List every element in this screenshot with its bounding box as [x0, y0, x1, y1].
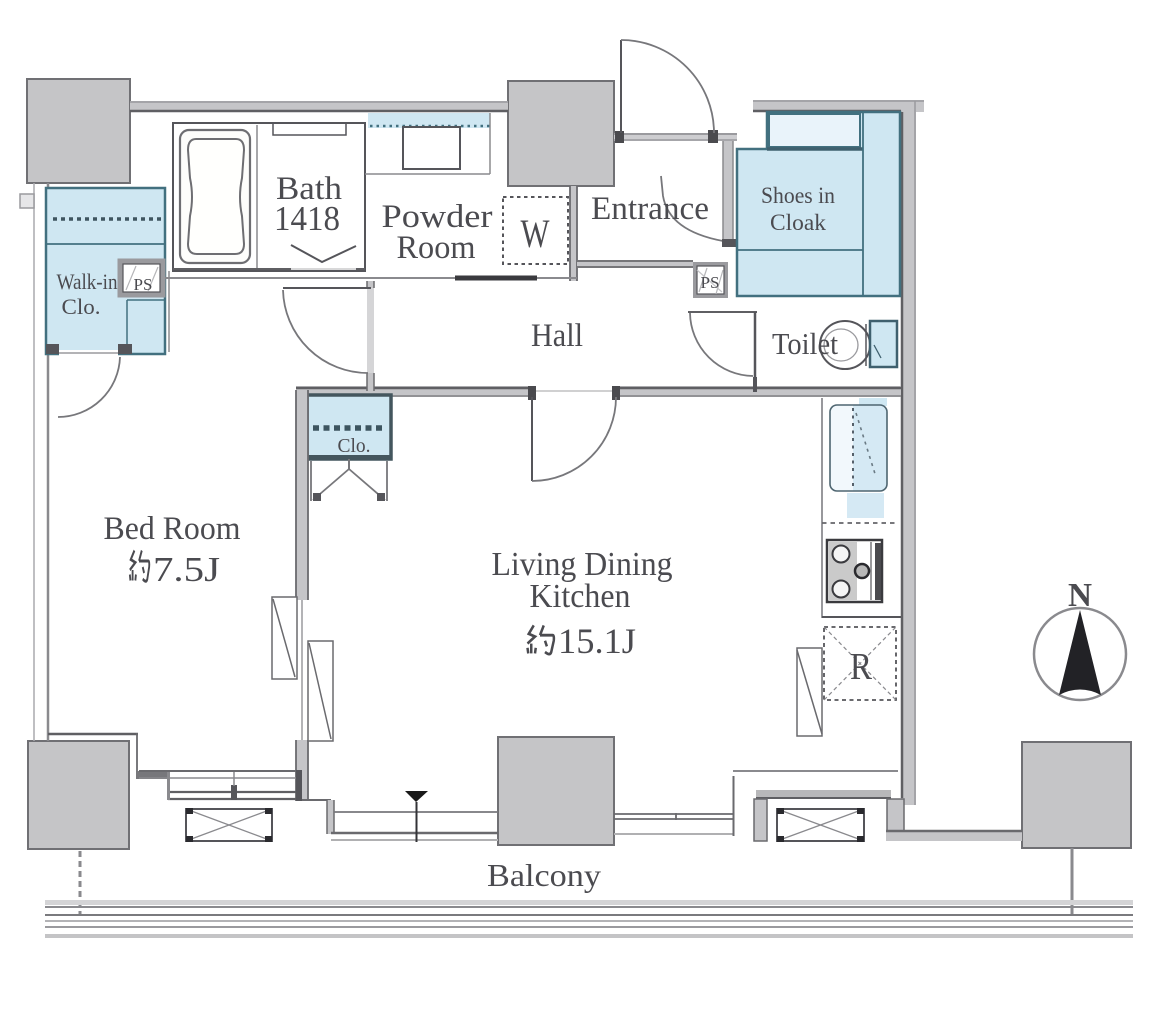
svg-text:15.1J: 15.1J	[558, 621, 636, 661]
svg-text:Walk-in: Walk-in	[57, 269, 118, 294]
svg-text:Shoes in: Shoes in	[761, 183, 835, 208]
svg-text:Kitchen: Kitchen	[530, 578, 631, 615]
svg-text:PS: PS	[701, 273, 720, 292]
svg-text:Balcony: Balcony	[487, 857, 601, 893]
svg-text:R: R	[850, 646, 873, 688]
svg-text:Clo.: Clo.	[62, 294, 101, 319]
svg-text:Clo.: Clo.	[338, 435, 371, 457]
svg-text:W: W	[521, 211, 550, 256]
svg-text:Entrance: Entrance	[591, 191, 709, 227]
svg-text:7.5J: 7.5J	[153, 550, 220, 589]
svg-text:N: N	[1068, 577, 1092, 614]
svg-text:Bed Room: Bed Room	[104, 511, 241, 547]
svg-text:Toilet: Toilet	[772, 326, 838, 361]
svg-text:1418: 1418	[274, 199, 340, 238]
svg-text:Cloak: Cloak	[770, 210, 826, 235]
svg-text:Hall: Hall	[531, 318, 583, 354]
svg-text:PS: PS	[134, 275, 153, 294]
svg-text:Room: Room	[397, 230, 476, 266]
